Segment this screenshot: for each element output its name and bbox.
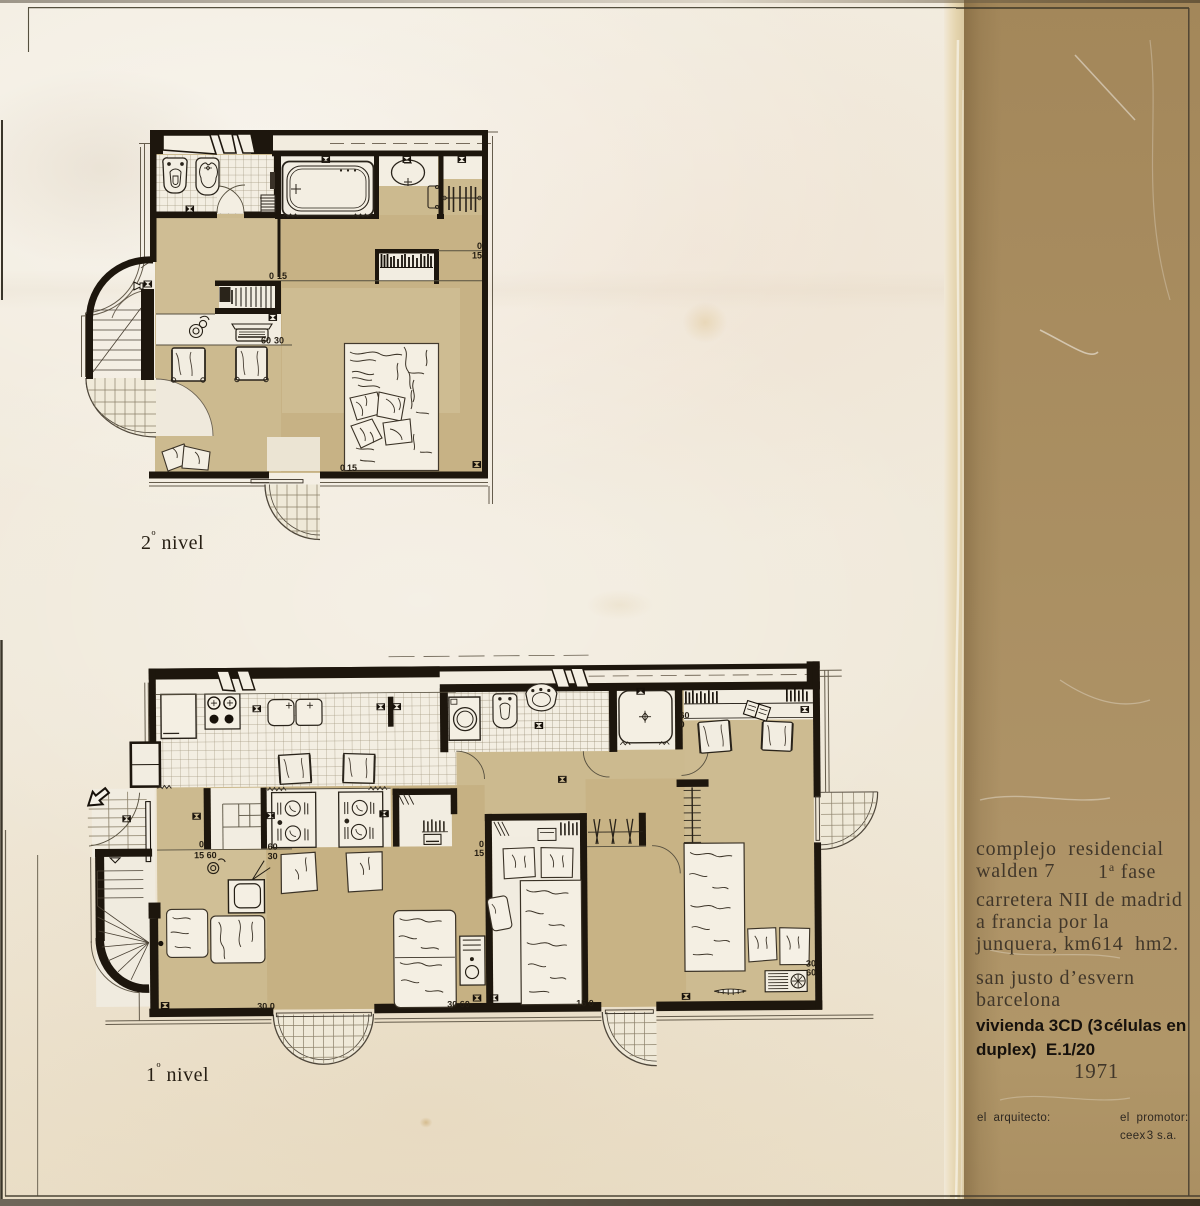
svg-text:0: 0 — [199, 839, 204, 849]
svg-text:30: 30 — [268, 851, 278, 861]
svg-text:60: 60 — [460, 999, 470, 1009]
svg-text:15: 15 — [347, 463, 357, 473]
svg-text:60: 60 — [261, 336, 271, 346]
svg-text:15: 15 — [472, 251, 482, 261]
svg-text:0: 0 — [269, 271, 274, 281]
svg-text:0: 0 — [477, 241, 482, 251]
svg-text:60: 60 — [806, 967, 816, 977]
svg-text:30: 30 — [274, 336, 284, 346]
svg-text:15: 15 — [194, 850, 204, 860]
svg-text:15: 15 — [576, 998, 586, 1008]
svg-text:0: 0 — [340, 463, 345, 473]
svg-text:30: 30 — [257, 1001, 267, 1011]
svg-text:0: 0 — [270, 1001, 275, 1011]
svg-text:15: 15 — [474, 848, 484, 858]
svg-text:0: 0 — [680, 719, 685, 729]
svg-text:15: 15 — [277, 271, 287, 281]
svg-text:30: 30 — [447, 999, 457, 1009]
svg-text:0: 0 — [589, 998, 594, 1008]
svg-text:60: 60 — [207, 850, 217, 860]
